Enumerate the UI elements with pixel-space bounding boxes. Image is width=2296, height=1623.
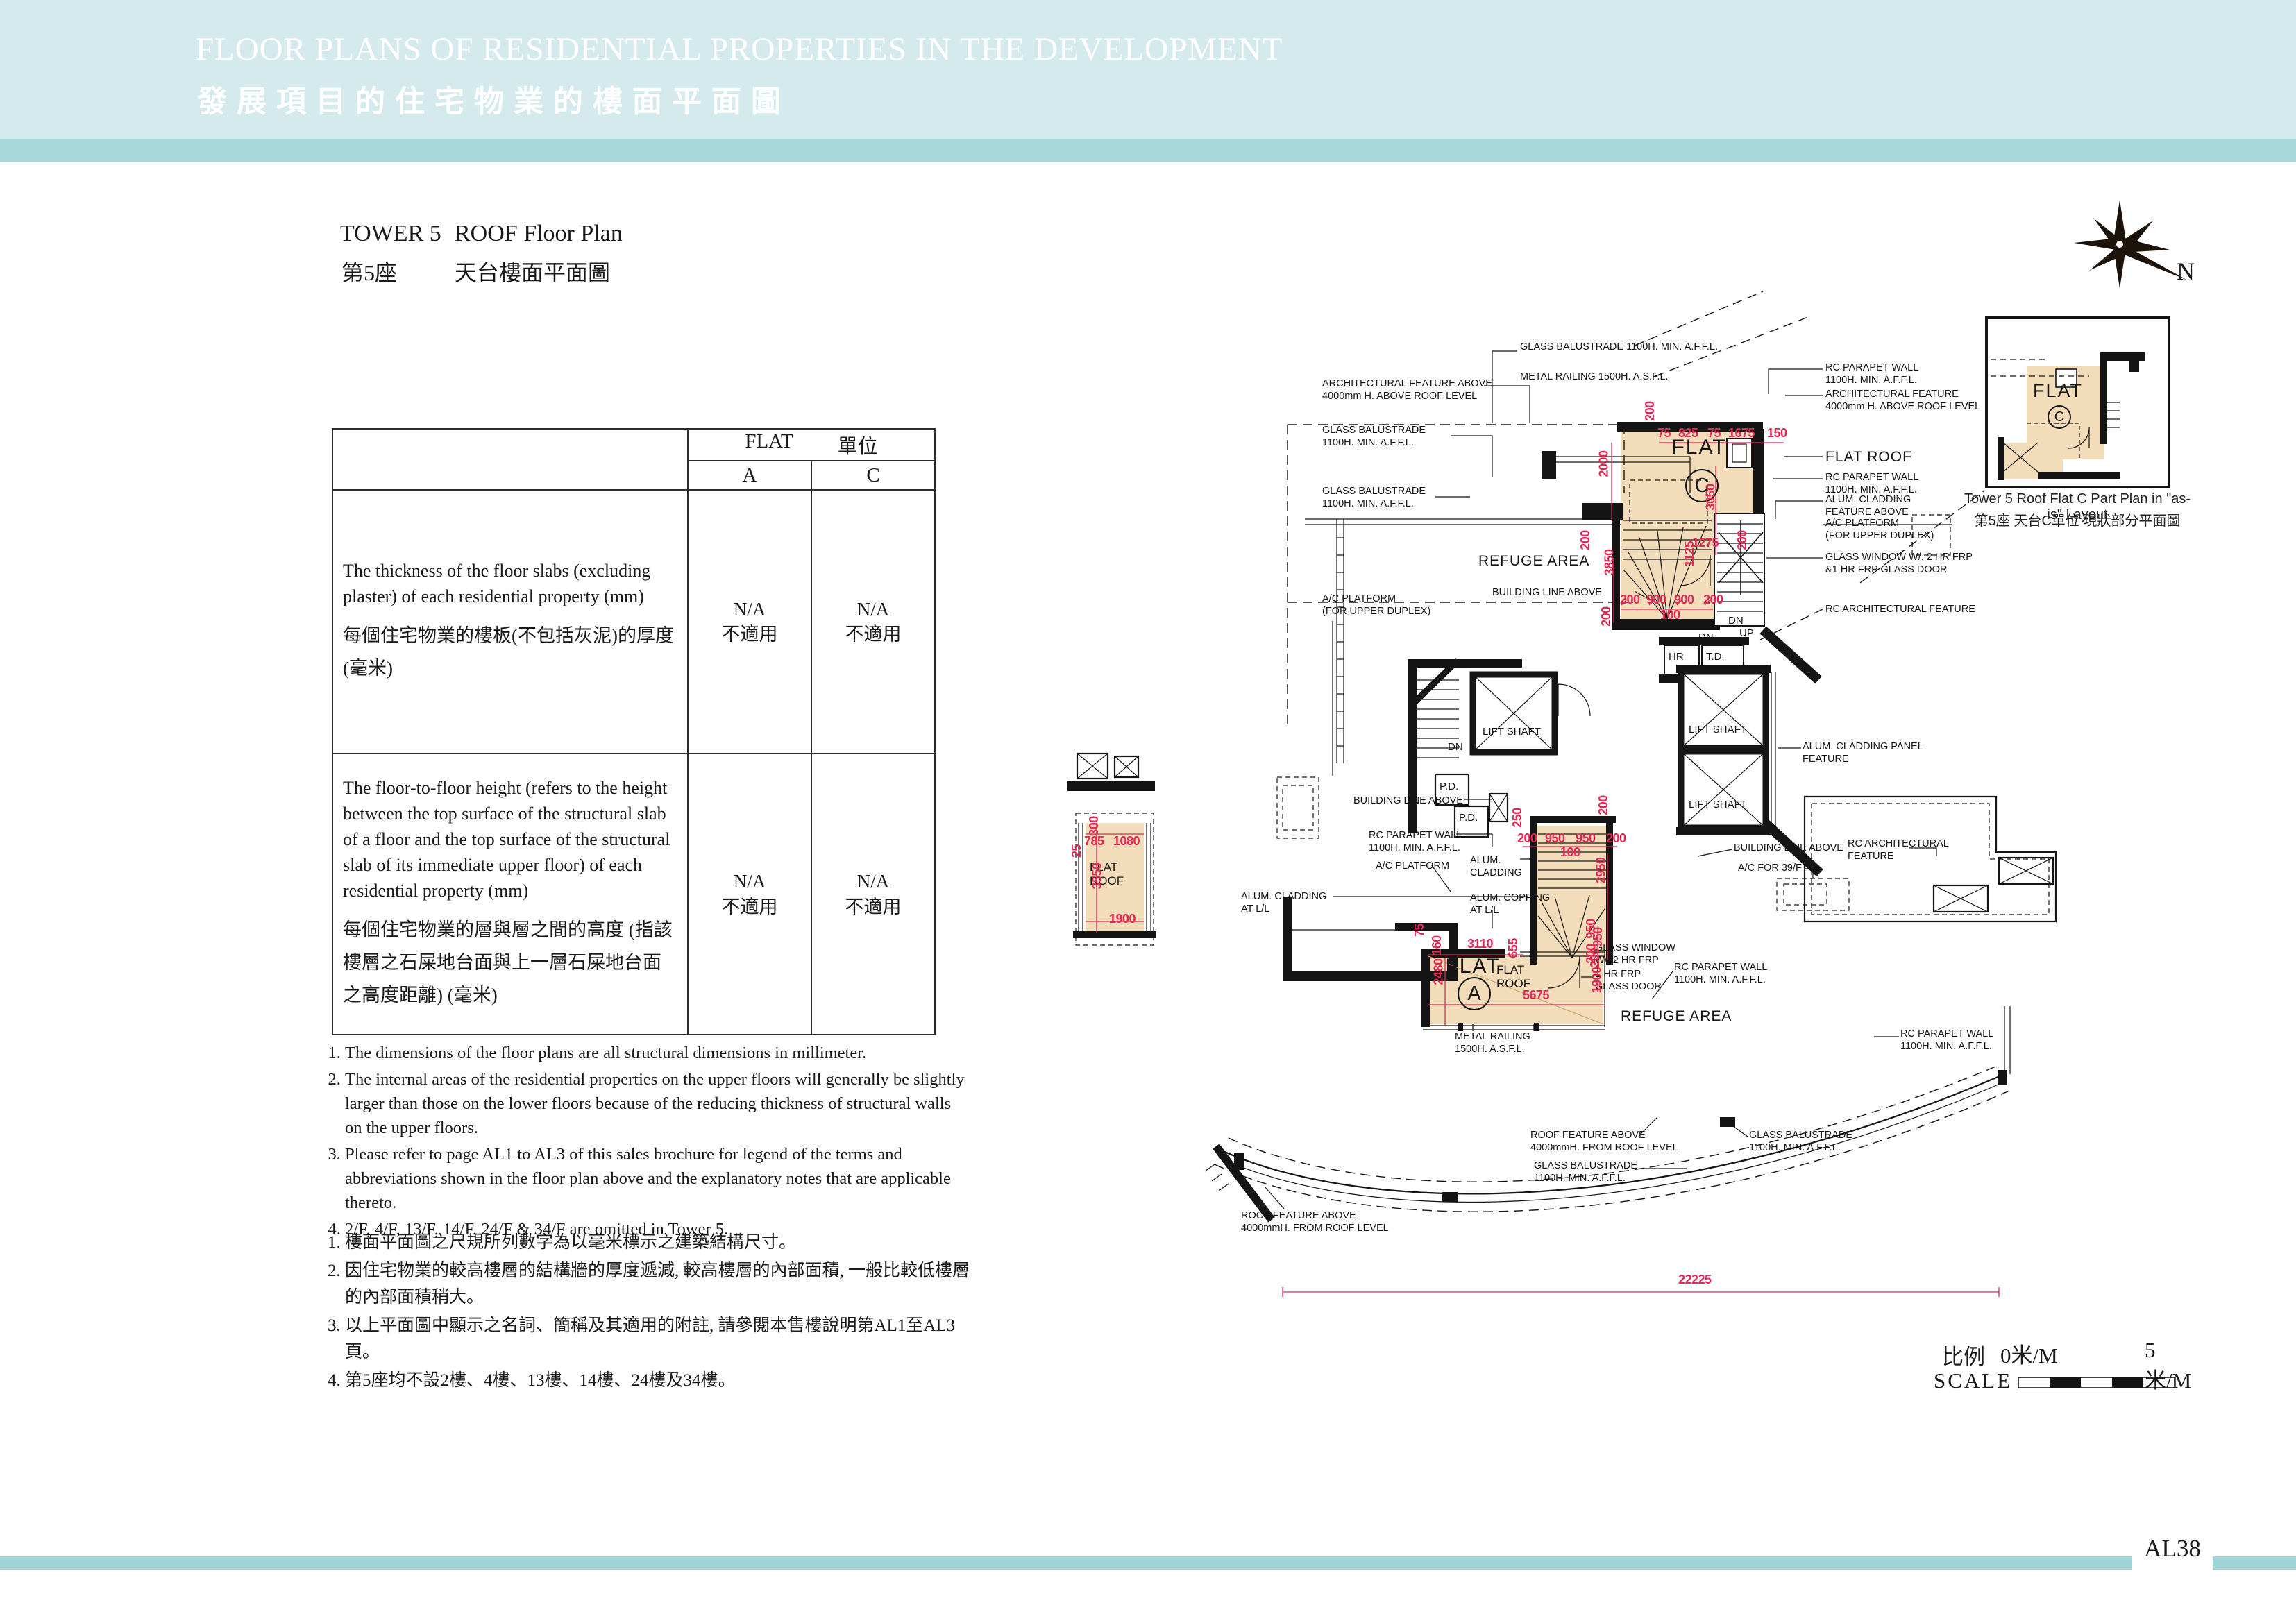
dim-label: 160: [1430, 935, 1444, 955]
plan-annotation: ALUM. CLADDING AT L/L: [1241, 891, 1326, 915]
dim-label: 200: [1578, 530, 1593, 550]
note-en-1: The dimensions of the floor plans are al…: [345, 1041, 972, 1065]
flat-a-letter: A: [1458, 977, 1491, 1010]
notes-chinese: 樓面平面圖之尺規所列數字為以毫米標示之建築結構尺寸。 因住宅物業的較高樓層的結構…: [316, 1230, 972, 1396]
lift-shaft-label: LIFT SHAFT: [1483, 726, 1541, 738]
dn-label: DN: [1448, 741, 1463, 753]
dim-label: 3110: [1467, 937, 1493, 951]
lift-shaft-label: LIFT SHAFT: [1689, 799, 1747, 810]
plan-annotation: GLASS BALUSTRADE 1100H. MIN. A.F.F.L.: [1749, 1130, 1852, 1154]
dim-label: 950: [1545, 831, 1565, 846]
inset-flat-label: FLAT: [2020, 380, 2096, 402]
dim-label: 200: [1596, 795, 1611, 815]
note-zh-1: 樓面平面圖之尺規所列數字為以毫米標示之建築結構尺寸。: [345, 1230, 972, 1256]
dim-label: 1900: [1590, 967, 1605, 993]
dim-label: 3050: [1704, 484, 1719, 510]
row-thickness-label: The thickness of the floor slabs (exclud…: [332, 490, 688, 754]
page-number: AL38: [2132, 1535, 2213, 1563]
floor-plan: GLASS BALUSTRADE 1100H. MIN. A.F.F.L. ME…: [1006, 194, 2200, 1402]
dim-label: 655: [1506, 938, 1521, 958]
dim-label: 5675: [1523, 988, 1549, 1003]
dim-label: 150: [1767, 426, 1787, 441]
note-en-3: Please refer to page AL1 to AL3 of this …: [345, 1142, 972, 1215]
dim-label: 900: [1674, 593, 1694, 607]
inset-caption-zh: 第5座 天台C單位 現狀部分平面圖: [1959, 509, 2195, 529]
dn-label: DN: [1728, 615, 1744, 627]
dim-label: 250: [1510, 808, 1525, 828]
note-zh-3: 以上平面圖中顯示之名詞、簡稱及其適用的附註, 請參閱本售樓說明第AL1至AL3頁…: [345, 1313, 972, 1366]
hr-label: HR: [1669, 651, 1684, 663]
dim-label: 75: [1412, 924, 1427, 937]
pd-label: P.D.: [1440, 781, 1458, 792]
thickness-value-a: N/A不適用: [688, 490, 811, 754]
flat-header-en: FLAT: [745, 430, 793, 459]
footer-strip-right: [2213, 1556, 2296, 1570]
plan-annotation: ALUM. CLADDING PANEL FEATURE: [1803, 741, 1923, 765]
plan-annotation: METAL RAILING 1500H. A.S.F.L.: [1455, 1031, 1530, 1055]
plan-annotation: METAL RAILING 1500H. A.S.F.L.: [1520, 371, 1669, 384]
dim-label: 2480: [1432, 958, 1446, 985]
column-header-c: C: [811, 461, 935, 490]
up-label: UP: [1739, 627, 1754, 639]
note-zh-4: 第5座均不設2樓、4樓、13樓、14樓、24樓及34樓。: [345, 1368, 972, 1394]
dim-label: 2000: [1597, 450, 1612, 477]
scale-zero: 0米/M: [2000, 1338, 2058, 1369]
plan-annotation: GLASS WINDOW W/. 2 HR FRP &1 HR FRP GLAS…: [1825, 552, 1973, 576]
plan-annotation: RC PARAPET WALL 1100H. MIN. A.F.F.L.: [1825, 472, 1918, 496]
dim-label: 3550: [1090, 863, 1105, 889]
plan-annotation: RC PARAPET WALL 1100H. MIN. A.F.F.L.: [1900, 1028, 1993, 1053]
footer-strip-left: [0, 1556, 2132, 1570]
plan-annotation: FLAT ROOF: [1825, 448, 1912, 466]
tower-label-zh: 第5座: [341, 255, 397, 287]
plan-annotation: RC PARAPET WALL 1100H. MIN. A.F.F.L.: [1825, 362, 1918, 386]
flat-header-zh: 單位: [838, 430, 878, 459]
scale-label-en: SCALE: [1934, 1368, 2012, 1393]
dim-label: 1900: [1109, 912, 1136, 926]
row-height-label: The floor-to-floor height (refers to the…: [332, 754, 688, 1035]
plan-annotation: RC ARCHITECTURAL FEATURE: [1825, 604, 1975, 616]
compass-icon: [2074, 200, 2188, 289]
dim-label: 950: [1576, 831, 1596, 846]
scale-five: 5米/M: [2145, 1338, 2200, 1394]
header-accent-strip: [0, 139, 2296, 162]
flat-roof-label: FLAT ROOF: [1496, 963, 1530, 991]
plan-annotation: GLASS BALUSTRADE 1100H. MIN. A.F.F.L.: [1322, 425, 1426, 449]
dim-label: 200: [1599, 606, 1614, 627]
dim-label: 100: [1560, 845, 1580, 860]
dim-label: 1080: [1113, 834, 1140, 849]
dim-label: 200: [1620, 593, 1640, 607]
note-en-2: The internal areas of the residential pr…: [345, 1067, 972, 1140]
inset-box: [1986, 318, 2169, 487]
plan-annotation: GLASS WINDOW W/. 2 HR FRP: [1595, 942, 1675, 967]
lift-shaft-label: LIFT SHAFT: [1689, 724, 1747, 736]
note-zh-2: 因住宅物業的較高樓層的結構牆的厚度遞減, 較高樓層的內部面積, 一般比較低樓層的…: [345, 1258, 972, 1311]
height-value-a: N/A不適用: [688, 754, 811, 1035]
plan-annotation: GLASS BALUSTRADE 1100H. MIN. A.F.F.L.: [1534, 1160, 1637, 1184]
dim-label: 950: [1584, 919, 1598, 939]
plan-annotation: BUILDING LINE ABOVE: [1734, 842, 1843, 855]
dim-label: 75: [1657, 426, 1671, 441]
dim-label: 25: [1070, 844, 1084, 858]
notes-english: The dimensions of the floor plans are al…: [316, 1041, 972, 1243]
dim-label: 825: [1678, 426, 1698, 441]
plan-annotation: A/C PLATFORM (FOR UPPER DUPLEX): [1322, 593, 1430, 618]
plan-annotation: ARCHITECTURAL FEATURE 4000mm H. ABOVE RO…: [1825, 389, 1980, 413]
dim-label: 900: [1646, 593, 1666, 607]
tower-label-en: TOWER 5: [340, 221, 441, 247]
north-label: N: [2177, 257, 2195, 286]
height-value-c: N/A不適用: [811, 754, 935, 1035]
td-label: T.D.: [1706, 651, 1725, 663]
plan-annotation: ALUM. CLADDING FEATURE ABOVE: [1825, 494, 1911, 518]
scale-label-zh: 比例: [1942, 1339, 1985, 1370]
dim-label: 785: [1084, 834, 1104, 849]
dim-label: 200: [1584, 944, 1598, 964]
plan-annotation: GLASS BALUSTRADE 1100H. MIN. A.F.F.L.: [1322, 486, 1426, 510]
plan-annotation: REFUGE AREA: [1621, 1008, 1732, 1026]
dim-label: 300: [1087, 816, 1101, 836]
plan-annotation: RC PARAPET WALL 1100H. MIN. A.F.F.L.: [1674, 962, 1767, 986]
plan-annotation: RC ARCHITECTURAL FEATURE: [1848, 838, 1949, 863]
plan-annotation: RC PARAPET WALL 1100H. MIN. A.F.F.L.: [1369, 830, 1462, 854]
plan-annotation: BUILDING LINE ABOVE: [1353, 795, 1463, 808]
pd-label: P.D.: [1459, 812, 1478, 824]
plan-annotation: ALUM. CLADDING: [1470, 855, 1522, 879]
plan-annotation: 1 HR FRP GLASS DOOR: [1595, 969, 1662, 993]
dim-label: 200: [1735, 530, 1750, 550]
plan-annotation: ROOF FEATURE ABOVE 4000mmH. FROM ROOF LE…: [1241, 1210, 1389, 1234]
plan-annotation: ROOF FEATURE ABOVE 4000mmH. FROM ROOF LE…: [1530, 1130, 1678, 1154]
plan-annotation: BUILDING LINE ABOVE: [1492, 587, 1602, 600]
page-title-chinese: 發展項目的住宅物業的樓面平面圖: [197, 78, 791, 121]
dim-label: 75: [1707, 426, 1721, 441]
dim-label: 3850: [1603, 549, 1617, 575]
dim-label: 1275: [1692, 536, 1719, 550]
floor-label-en: ROOF Floor Plan: [455, 221, 623, 247]
dn-label: DN: [1698, 631, 1714, 643]
thickness-value-c: N/A不適用: [811, 490, 935, 754]
flat-header-cell: FLAT 單位: [688, 429, 935, 461]
overall-dim-label: 22225: [1678, 1273, 1712, 1287]
spec-table-corner: [332, 429, 688, 490]
dim-label: 200: [1703, 593, 1723, 607]
page-title: FLOOR PLANS OF RESIDENTIAL PROPERTIES IN…: [196, 31, 1283, 68]
flat-c-label: FLAT: [1664, 436, 1734, 459]
plan-annotation: A/C FOR 39/F: [1738, 863, 1802, 875]
spec-table: FLAT 單位 A C The thickness of the floor s…: [332, 428, 936, 1035]
dim-label: 100: [1660, 608, 1680, 622]
dim-label: 1675: [1728, 426, 1755, 441]
column-header-a: A: [688, 461, 811, 490]
dim-label: 2950: [1594, 857, 1609, 883]
dim-label: 200: [1606, 831, 1626, 846]
plan-annotation: REFUGE AREA: [1478, 552, 1589, 570]
plan-annotation: ARCHITECTURAL FEATURE ABOVE 4000mm H. AB…: [1322, 378, 1492, 402]
plan-annotation: A/C PLATFORM (FOR UPPER DUPLEX): [1825, 518, 1934, 542]
dim-label: 200: [1517, 831, 1537, 846]
dim-label: 200: [1643, 401, 1657, 421]
brochure-page: FLOOR PLANS OF RESIDENTIAL PROPERTIES IN…: [0, 0, 2296, 1623]
plan-annotation: GLASS BALUSTRADE 1100H. MIN. A.F.F.L.: [1520, 341, 1718, 354]
plan-annotation: A/C PLATFORM: [1376, 860, 1449, 873]
inset-flat-letter: C: [2048, 405, 2071, 429]
floor-label-zh: 天台樓面平面圖: [455, 255, 610, 287]
plan-annotation: ALUM. COPPING AT L/L: [1470, 892, 1550, 917]
